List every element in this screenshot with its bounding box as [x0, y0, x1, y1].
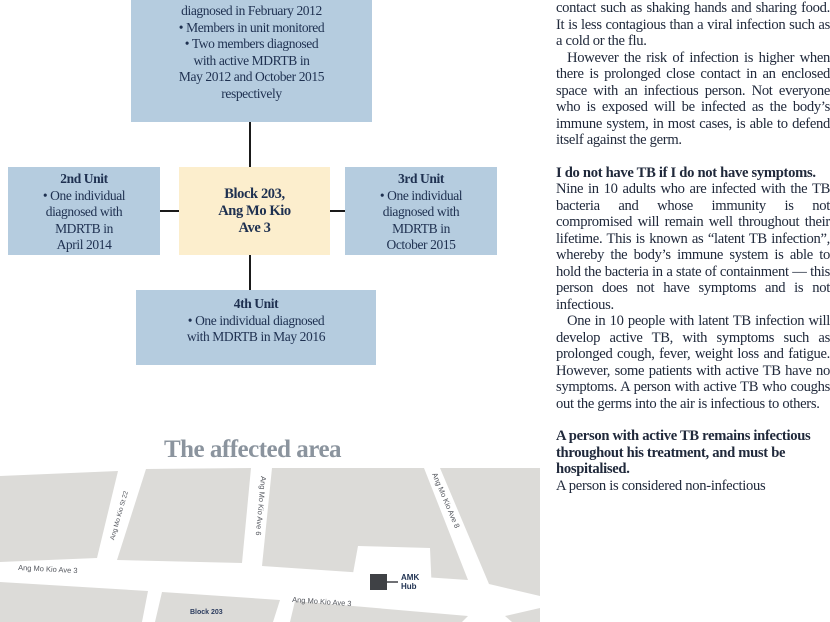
map-road-gap — [350, 546, 432, 594]
block-203-center-box: Block 203, Ang Mo Kio Ave 3 — [179, 167, 330, 255]
unit1-line: with active MDRTB in — [131, 53, 372, 70]
unit1-line: • Members in unit monitored — [131, 20, 372, 37]
center-line: Block 203, — [179, 186, 330, 203]
article-subheading: I do not have TB if I do not have sympto… — [556, 165, 830, 182]
map-block — [155, 592, 280, 622]
unit2-title: 2nd Unit — [8, 171, 160, 188]
unit2-line: MDRTB in — [8, 221, 160, 238]
unit3-box: 3rd Unit • One individual diagnosed with… — [345, 167, 497, 255]
connector-line — [249, 255, 251, 290]
article-column: contact such as shaking hands and sharin… — [556, 0, 830, 494]
road-label-ave3-left: Ang Mo Kio Ave 3 — [18, 563, 78, 575]
article-paragraph: Nine in 10 adults who are infected with … — [556, 181, 830, 313]
unit3-title: 3rd Unit — [345, 171, 497, 188]
unit1-line: diagnosed in February 2012 — [131, 3, 372, 20]
unit1-line: May 2012 and October 2015 — [131, 69, 372, 86]
article-paragraph: However the risk of infection is higher … — [556, 50, 830, 149]
article-paragraph: contact such as shaking hands and sharin… — [556, 0, 830, 50]
unit2-line: diagnosed with — [8, 204, 160, 221]
connector-line — [249, 122, 251, 167]
unit4-title: 4th Unit — [136, 296, 376, 313]
affected-area-map: Ang Mo Kio St 22 Ang Mo Kio Ave 6 Ang Mo… — [0, 468, 540, 622]
map-title: The affected area — [0, 436, 505, 464]
article-paragraph: One in 10 people with latent TB infectio… — [556, 313, 830, 412]
unit2-box: 2nd Unit • One individual diagnosed with… — [8, 167, 160, 255]
map-block — [505, 608, 540, 622]
connector-line — [330, 210, 345, 212]
road-label-ave6: Ang Mo Kio Ave 6 — [254, 476, 268, 536]
unit3-line: MDRTB in — [345, 221, 497, 238]
map-block — [0, 471, 118, 562]
map-block — [117, 468, 251, 563]
block-203-map-label: Block 203 — [190, 609, 223, 616]
center-line: Ang Mo Kio — [179, 203, 330, 220]
unit1-box: diagnosed in February 2012 • Members in … — [131, 0, 372, 122]
amk-hub-marker — [370, 574, 387, 590]
article-subheading: A person with active TB remains infectio… — [556, 428, 830, 478]
article-paragraph: A person is considered non-infectious — [556, 478, 830, 495]
unit2-line: April 2014 — [8, 237, 160, 254]
map-block — [0, 582, 148, 622]
center-line: Ave 3 — [179, 220, 330, 237]
connector-line — [160, 210, 179, 212]
unit1-line: respectively — [131, 86, 372, 103]
amk-hub-label: Hub — [401, 582, 417, 591]
unit4-box: 4th Unit • One individual diagnosed with… — [136, 290, 376, 365]
unit1-line: • Two members diagnosed — [131, 36, 372, 53]
unit4-line: • One individual diagnosed — [136, 313, 376, 330]
unit3-line: • One individual — [345, 188, 497, 205]
unit2-line: • One individual — [8, 188, 160, 205]
unit3-line: October 2015 — [345, 237, 497, 254]
amk-hub-label: AMK — [401, 573, 419, 582]
newspaper-infographic-page: diagnosed in February 2012 • Members in … — [0, 0, 830, 622]
unit3-line: diagnosed with — [345, 204, 497, 221]
unit4-line: with MDRTB in May 2016 — [136, 329, 376, 346]
